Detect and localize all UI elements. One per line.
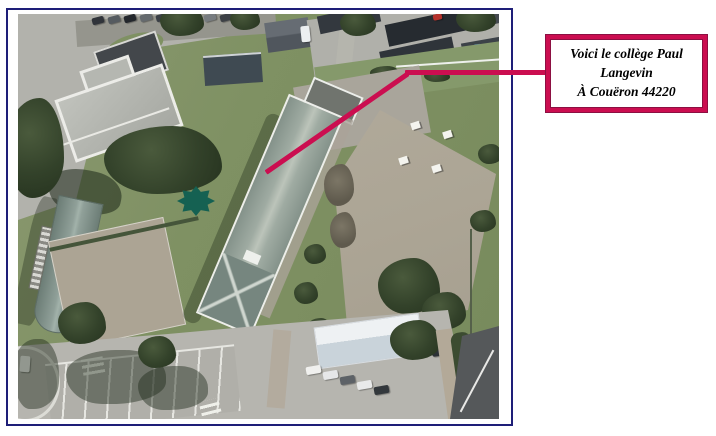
tree [470, 210, 496, 232]
white-van [300, 26, 311, 43]
pointer-line-horizontal [405, 70, 548, 75]
building-roof-flat-dark [203, 52, 263, 86]
tree [138, 336, 176, 368]
callout-box: Voici le collège Paul Langevin À Couëron… [546, 35, 707, 112]
callout-text-line-3: À Couëron 44220 [550, 82, 703, 101]
tree [340, 14, 376, 36]
tree [390, 320, 440, 360]
bare-tree [330, 212, 356, 248]
star-marker [177, 186, 215, 216]
tree [304, 244, 326, 264]
tree-shadow [18, 339, 59, 409]
tree [478, 144, 499, 164]
tree-cluster [104, 126, 222, 194]
tree [294, 282, 318, 304]
fence-line [470, 229, 472, 344]
document-page: Voici le collège Paul Langevin À Couëron… [0, 0, 716, 436]
tree-shadow [138, 366, 208, 410]
callout-text-line-2: Langevin [550, 63, 703, 82]
tree [58, 302, 106, 344]
table-tennis-table [442, 130, 453, 139]
bare-tree [324, 164, 354, 206]
callout-text-line-1: Voici le collège Paul [550, 44, 703, 63]
